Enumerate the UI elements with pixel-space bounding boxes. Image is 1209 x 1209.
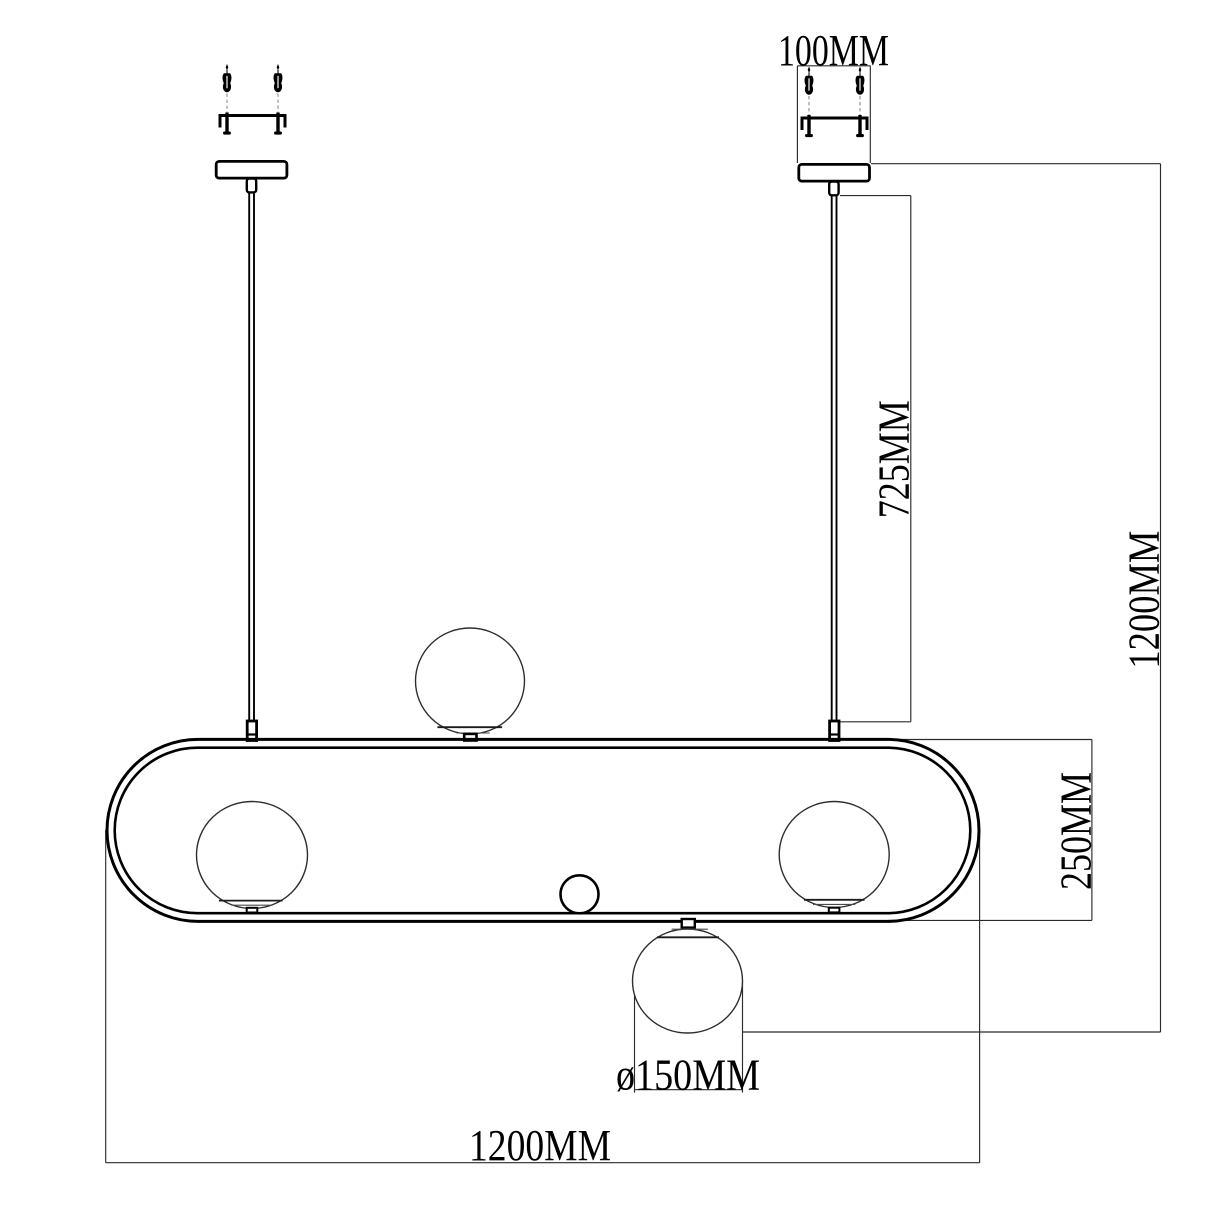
svg-text:1200MM: 1200MM [469, 1121, 611, 1170]
svg-text:725MM: 725MM [870, 400, 919, 518]
svg-text:250MM: 250MM [1052, 772, 1101, 890]
svg-text:ø150MM: ø150MM [616, 1051, 760, 1100]
svg-text:100MM: 100MM [778, 26, 889, 75]
svg-text:1200MM: 1200MM [1120, 531, 1169, 669]
